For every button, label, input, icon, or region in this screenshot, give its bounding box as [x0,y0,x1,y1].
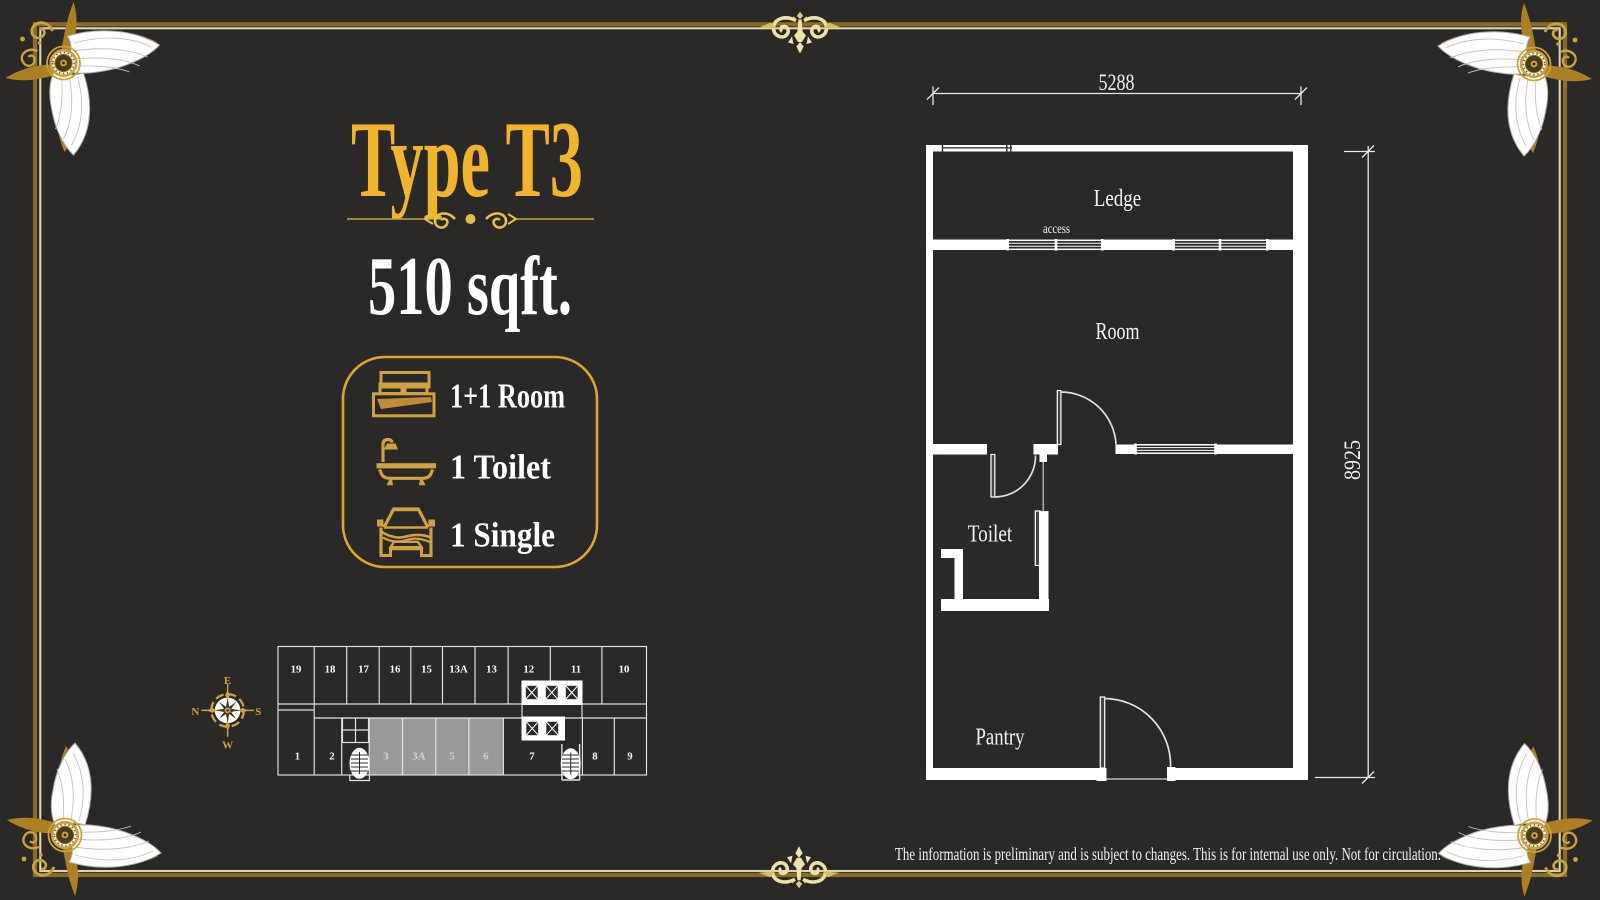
svg-text:17: 17 [358,664,369,676]
svg-text:Pantry: Pantry [976,724,1026,751]
svg-text:18: 18 [325,664,336,676]
svg-text:S: S [255,706,261,718]
svg-text:1 Toilet: 1 Toilet [450,448,551,487]
svg-text:Toilet: Toilet [968,521,1013,548]
svg-text:3A: 3A [412,751,425,763]
svg-text:5288: 5288 [1099,70,1135,95]
svg-text:3: 3 [383,751,389,763]
svg-text:Room: Room [1096,318,1140,345]
svg-text:The information is preliminary: The information is preliminary and is su… [895,844,1441,864]
svg-text:1 Single: 1 Single [450,516,555,555]
svg-text:11: 11 [571,664,581,676]
svg-text:15: 15 [421,664,432,676]
svg-text:10: 10 [619,664,630,676]
svg-text:8: 8 [592,751,598,763]
svg-text:8925: 8925 [1340,440,1365,480]
svg-text:W: W [222,740,233,752]
svg-text:510 sqft.: 510 sqft. [368,240,572,333]
svg-text:access: access [1043,221,1070,236]
svg-text:2: 2 [329,751,334,763]
svg-text:19: 19 [291,664,302,676]
svg-text:Type T3: Type T3 [351,99,583,220]
svg-text:N: N [191,706,199,718]
svg-text:7: 7 [529,751,535,763]
svg-text:9: 9 [627,751,633,763]
svg-text:12: 12 [523,664,534,676]
svg-text:1+1 Room: 1+1 Room [450,377,565,416]
svg-text:13A: 13A [449,664,468,676]
svg-text:6: 6 [483,751,489,763]
svg-text:13: 13 [486,664,497,676]
svg-text:E: E [224,675,231,687]
svg-text:Ledge: Ledge [1094,185,1142,212]
svg-text:5: 5 [449,751,454,763]
svg-text:16: 16 [390,664,401,676]
svg-text:1: 1 [295,751,300,763]
